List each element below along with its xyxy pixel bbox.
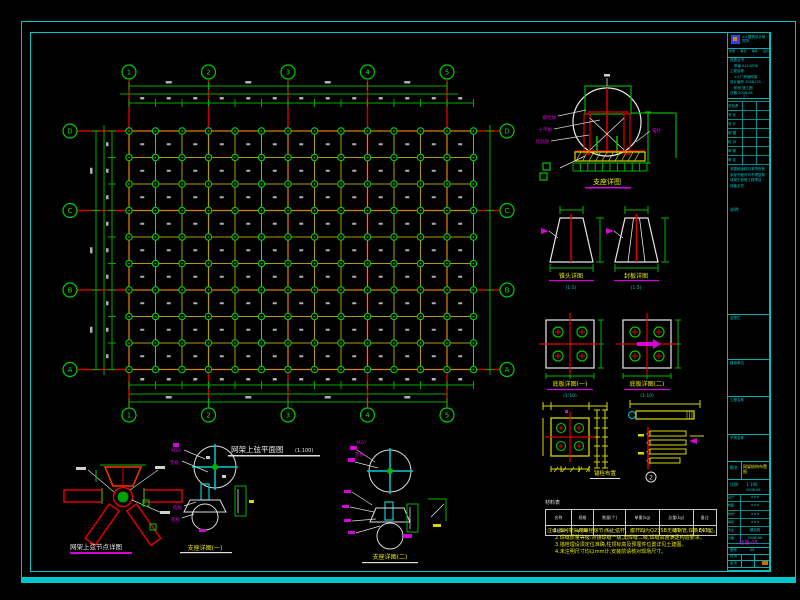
small-row-label: 审核: [728, 519, 741, 526]
dim-text-mark: [405, 378, 409, 381]
dim-text-mark: [167, 276, 171, 278]
axis-bubble-bottom-label: 2: [206, 412, 210, 420]
sheet-index-label: 第 张: [730, 561, 737, 565]
dim-text-mark: [379, 196, 383, 198]
sign-label: 设 计: [728, 120, 743, 128]
dim-text-mark: [458, 329, 462, 331]
dim-text-mark: [299, 97, 303, 100]
dim-text-mark: [167, 378, 171, 381]
dim-text-mark: [167, 355, 171, 357]
node-center: [367, 183, 369, 185]
node-center: [340, 236, 342, 238]
node-center: [340, 263, 342, 265]
sign-cell: [743, 156, 757, 164]
small-row-value: ×××: [741, 511, 769, 518]
dim-text-mark: [193, 223, 197, 225]
grout-hatch: [575, 152, 645, 161]
detail-title: 锚栓布置: [594, 469, 617, 477]
dim-text-mark: [379, 276, 383, 278]
note-label: 说明:: [730, 207, 739, 213]
node-center: [155, 130, 157, 132]
axis-bubble-top-label: 3: [286, 69, 290, 77]
dim-text-mark: [140, 249, 144, 251]
dim-text-mark: [220, 223, 224, 225]
dim-text-mark: [193, 97, 197, 100]
dim-text-mark: [379, 329, 383, 331]
node-center: [128, 263, 130, 265]
dim-text-mark: [379, 302, 383, 304]
chord-tube-right: [144, 490, 182, 502]
sign-row: 校 对: [728, 138, 769, 147]
small-row-label: 设计: [728, 494, 741, 501]
node-center: [261, 289, 263, 291]
dim-text-mark: [246, 302, 250, 304]
dim-text-mark: [140, 170, 144, 172]
dim-text-mark: [299, 170, 303, 172]
node-center: [234, 342, 236, 344]
date-value: 2008.06: [746, 488, 760, 492]
dim-text-mark: [432, 302, 436, 304]
dim-text-mark: [246, 276, 250, 278]
dim-text-mark: [352, 196, 356, 198]
node-center: [367, 263, 369, 265]
node-center: [420, 263, 422, 265]
leader-label: 底板: [171, 516, 180, 523]
axis-bubble-right-label: B: [505, 287, 510, 295]
dim-text-mark: [245, 396, 251, 399]
decor-layer: [546, 152, 692, 472]
node-center: [155, 183, 157, 185]
node-center: [393, 157, 395, 159]
node-center: [393, 369, 395, 371]
node-center: [128, 342, 130, 344]
axis-bubble-left-label: D: [67, 128, 72, 136]
dim-text-mark: [90, 247, 93, 253]
detail-scale: (1:10): [640, 393, 654, 399]
node-center: [181, 316, 183, 318]
circled-number: 2: [649, 475, 653, 482]
company-logo: [731, 35, 740, 44]
sign-label: 制 图: [728, 129, 743, 137]
node-center: [446, 130, 448, 132]
dim-text-mark: [220, 276, 224, 278]
small-row: 设计×××: [728, 494, 769, 502]
small-row: 制图×××: [728, 502, 769, 510]
dim-text-mark: [220, 170, 224, 172]
dim-text-mark: [273, 143, 277, 145]
dim-text-mark: [405, 223, 409, 225]
node-center: [287, 316, 289, 318]
dim-text-mark: [432, 143, 436, 145]
leader-label: M20: [171, 448, 181, 454]
dim-text-mark: [352, 276, 356, 278]
dim-text-mark: [326, 302, 330, 304]
section-divider: [728, 396, 769, 397]
dim-text-mark: [432, 329, 436, 331]
dim-text-mark: [220, 378, 224, 381]
dim-text-mark: [246, 97, 250, 100]
node-center: [128, 210, 130, 212]
drawing-number: 结施-08: [728, 539, 769, 546]
dim-text-mark: [404, 396, 410, 399]
dim-text-mark: [193, 170, 197, 172]
node-center: [234, 316, 236, 318]
dim-text-mark: [140, 302, 144, 304]
sign-cell: [743, 138, 757, 146]
node-center: [287, 157, 289, 159]
stamp-mark: [762, 561, 768, 565]
drawing-no-label: 图号: [730, 548, 737, 553]
node-center: [181, 342, 183, 344]
leader-label: 螺栓球: [543, 114, 557, 121]
general-notes: 注:1.本网架采用螺栓球节点,上弦杆、腹杆均为Q235B无缝钢管,焊条E43型。…: [547, 528, 725, 556]
dim-text-mark: [352, 223, 356, 225]
sign-cell: [743, 129, 757, 137]
node-center: [287, 183, 289, 185]
node-center: [446, 236, 448, 238]
detail-title: 支座详图: [593, 177, 621, 186]
leader-label: 垫板: [170, 459, 179, 466]
sign-label: 专 业: [728, 111, 743, 119]
dim-text-mark: [352, 249, 356, 251]
sign-cell: [743, 102, 757, 110]
node-center: [446, 210, 448, 212]
hatch-line: [635, 152, 640, 161]
node-center: [340, 210, 342, 212]
node-center: [181, 157, 183, 159]
small-row-value: ×××: [741, 502, 769, 509]
node-center: [155, 157, 157, 159]
dim-text-mark: [299, 223, 303, 225]
node-center: [367, 342, 369, 344]
dim-text-mark: [106, 169, 109, 173]
dim-text-mark: [405, 329, 409, 331]
title-block: ××建筑设计研究院 批准审定审核设计 资质证书甲级 A113008工程名称××厂…: [727, 32, 770, 571]
node-center: [420, 369, 422, 371]
node-center: [128, 369, 130, 371]
dim-text-mark: [326, 329, 330, 331]
weld-symbol-2: [540, 173, 547, 180]
dim-text-mark: [246, 170, 250, 172]
node-center: [367, 316, 369, 318]
node-center: [234, 369, 236, 371]
dim-text-mark: [140, 378, 144, 381]
note-line-4: 4.未注明尺寸均以mm计,安装前请核对现场尺寸。: [547, 549, 725, 556]
node-center: [181, 183, 183, 185]
dim-text-mark: [352, 170, 356, 172]
node-center: [420, 342, 422, 344]
dim-text-mark: [220, 329, 224, 331]
dim-text-mark: [90, 168, 93, 174]
node-center: [261, 236, 263, 238]
dim-text-mark: [326, 276, 330, 278]
support-detail-2: M20 垫板 支座详图(二): [342, 440, 446, 563]
node-center: [314, 183, 316, 185]
scale-label: 比例: [730, 482, 738, 488]
node-center: [314, 236, 316, 238]
dim-text-mark: [106, 142, 109, 146]
dim-text-mark: [458, 276, 462, 278]
copyright-block: 本图纸版权归本院所有未经书面许可不得复制或用于其他工程项目违者必究: [730, 167, 765, 189]
node-center: [181, 263, 183, 265]
node-center: [287, 369, 289, 371]
dim-text-mark: [432, 355, 436, 357]
node-center: [261, 342, 263, 344]
dim-text-mark: [326, 223, 330, 225]
node-center: [446, 342, 448, 344]
dim-text-mark: [405, 97, 409, 100]
leader-label: 加劲肋: [536, 138, 550, 145]
table-header-cell: 总重(kg): [659, 510, 693, 526]
table-header-cell: 数量(个): [594, 510, 626, 526]
node-center: [393, 183, 395, 185]
sheet-no: 08: [750, 548, 754, 552]
dim-text-mark: [245, 81, 251, 84]
dim-text-mark: [326, 355, 330, 357]
dim-text-mark: [379, 355, 383, 357]
dim-text-mark: [405, 276, 409, 278]
dim-text-mark: [193, 355, 197, 357]
node-center: [287, 236, 289, 238]
plan-scale-text: (1:100): [295, 448, 313, 454]
dim-text-mark: [379, 97, 383, 100]
axis-bubble-top-label: 1: [127, 69, 131, 77]
scale-value: 1:100: [746, 482, 758, 487]
node-center: [340, 369, 342, 371]
dim-text-mark: [379, 223, 383, 225]
dim-text-mark: [326, 143, 330, 145]
dim-text-mark: [273, 329, 277, 331]
dim-text-mark: [379, 143, 383, 145]
plan-title-underline: [228, 455, 320, 457]
dim-text-mark: [273, 378, 277, 381]
dim-text-mark: [140, 355, 144, 357]
dim-text-mark: [379, 378, 383, 381]
dim-text-mark: [405, 170, 409, 172]
table-header-row: 名称规格数量(个)单重(kg)总重(kg)备注: [546, 510, 717, 526]
node-center: [128, 183, 130, 185]
sign-cell: [743, 120, 757, 128]
drawing-name-label: 图名: [730, 465, 738, 471]
node-center: [155, 289, 157, 291]
company-name: ××建筑设计研究院: [742, 35, 768, 43]
node-center: [393, 263, 395, 265]
dim-text-mark: [90, 327, 93, 333]
node-center: [420, 316, 422, 318]
node-center: [473, 210, 475, 212]
dim-text-mark: [166, 81, 172, 84]
dim-text-mark: [432, 378, 436, 381]
node-center: [287, 289, 289, 291]
cone-details: 锥头详图 (1:5) 封板详图 (1:5): [541, 206, 669, 291]
weld-symbol-1: [543, 163, 550, 170]
anchor-elev-detail: 2: [629, 400, 705, 482]
leader-label: 十字板: [539, 126, 553, 133]
sign-row: 设 计: [728, 120, 769, 129]
node-center: [208, 369, 210, 371]
info-line: 设计编号 2008-J15: [730, 80, 761, 86]
node-center: [367, 289, 369, 291]
sign-row: 审 定: [728, 156, 769, 165]
dim-text-mark: [193, 378, 197, 381]
node-center: [340, 289, 342, 291]
dim-text-mark: [458, 97, 462, 100]
axis-bubble-top-label: 5: [445, 69, 449, 77]
node-center: [261, 369, 263, 371]
dim-text-mark: [220, 302, 224, 304]
dim-text-mark: [299, 378, 303, 381]
node-center: [234, 289, 236, 291]
node-center: [128, 236, 130, 238]
node-center: [340, 130, 342, 132]
node-center: [208, 263, 210, 265]
node-center: [393, 130, 395, 132]
node-center: [208, 210, 210, 212]
sign-cell: [743, 147, 757, 155]
dim-text-mark: [326, 170, 330, 172]
cert-cell: 审定: [740, 49, 746, 56]
table-header-cell: 规格: [571, 510, 593, 526]
node-center: [261, 263, 263, 265]
dim-text-mark: [299, 196, 303, 198]
dim-text-mark: [273, 223, 277, 225]
dim-text-mark: [220, 143, 224, 145]
node-center: [367, 130, 369, 132]
note-line-2: 2.焊缝质量等级:对接焊缝一级,角焊缝二级,焊缝高度满足构造要求。: [547, 535, 725, 542]
dim-text-mark: [167, 249, 171, 251]
node-center: [234, 210, 236, 212]
weld-arrow: [606, 228, 614, 234]
section-arrow: [637, 342, 653, 346]
node-center: [340, 157, 342, 159]
dim-text-mark: [432, 170, 436, 172]
node-center: [473, 289, 475, 291]
cad-sheet: 1122334455DDCCBBAA 网架上弦平面图 (1:100): [0, 0, 800, 600]
dim-text-mark: [167, 196, 171, 198]
dim-text-mark: [193, 196, 197, 198]
cert-cell: 审核: [752, 49, 758, 56]
node-center: [420, 289, 422, 291]
node-center: [473, 316, 475, 318]
dim-text-mark: [246, 378, 250, 381]
dim-text-mark: [140, 223, 144, 225]
node-center: [314, 342, 316, 344]
dim-text-mark: [352, 329, 356, 331]
detail-title: 底板详图(一): [553, 380, 588, 388]
dim-text-mark: [326, 97, 330, 100]
dim-text-mark: [405, 249, 409, 251]
node-center: [287, 130, 289, 132]
sign-row: 审 核: [728, 147, 769, 156]
dim-text-mark: [246, 329, 250, 331]
dim-text-mark: [299, 249, 303, 251]
dim-text-mark: [299, 302, 303, 304]
dim-text-mark: [432, 97, 436, 100]
leader-label: 锚栓: [652, 127, 661, 134]
node-center: [314, 369, 316, 371]
axis-bubble-left-label: B: [68, 287, 73, 295]
node-center: [314, 130, 316, 132]
axis-bubble-right-label: D: [504, 128, 509, 136]
dim-text-mark: [246, 196, 250, 198]
node-center: [155, 263, 157, 265]
dim-text-mark: [325, 81, 331, 84]
node-center: [208, 130, 210, 132]
dim-text-mark: [246, 143, 250, 145]
dim-text-mark: [166, 396, 172, 399]
dim-text-mark: [273, 196, 277, 198]
dim-text-mark: [299, 143, 303, 145]
plan-title: 网架上弦平面图 (1:100): [228, 444, 320, 457]
small-row-label: 专业: [728, 527, 741, 534]
axis-bubble-right-label: C: [505, 207, 510, 215]
node-center: [420, 157, 422, 159]
detail-title: 支座详图(一): [188, 544, 223, 552]
section-divider: [728, 359, 769, 360]
small-row-label: 制图: [728, 502, 741, 509]
dim-text-mark: [379, 170, 383, 172]
sign-label: 总负责: [728, 102, 743, 110]
node-center: [181, 210, 183, 212]
table-header-cell: 名称: [546, 510, 572, 526]
node-center: [473, 130, 475, 132]
node-center: [473, 369, 475, 371]
node-center: [155, 316, 157, 318]
axis-bubble-top-label: 4: [365, 69, 370, 77]
axis-bubble-bottom-label: 3: [286, 412, 290, 420]
note-line-1: 注:1.本网架采用螺栓球节点,上弦杆、腹杆均为Q235B无缝钢管,焊条E43型。: [547, 528, 725, 535]
dim-text-mark: [193, 276, 197, 278]
table-header-cell: 备注: [693, 510, 716, 526]
node-center: [446, 369, 448, 371]
dim-text-mark: [246, 223, 250, 225]
node-center: [208, 289, 210, 291]
drawing-name-value: 网架结构布置图: [743, 464, 769, 474]
small-row-value: 钢结构: [741, 527, 769, 534]
dim-text-mark: [106, 222, 109, 226]
dim-text-mark: [405, 143, 409, 145]
node-center: [446, 263, 448, 265]
dim-text-mark: [193, 249, 197, 251]
sign-label: 校 对: [728, 138, 743, 146]
node-center: [340, 342, 342, 344]
section-label: 会签栏: [730, 316, 741, 321]
node-center: [208, 236, 210, 238]
node-center: [420, 183, 422, 185]
node-center: [234, 263, 236, 265]
note-line-3: 3.锚栓埋设须定位准确,柱顶标高及预埋件位置详见土建图。: [547, 542, 725, 549]
detail-title: 锥头详图: [559, 272, 583, 280]
sign-label: 审 核: [728, 147, 743, 155]
node-center: [128, 316, 130, 318]
detail-scale: (1:5): [566, 285, 577, 291]
node-center: [367, 157, 369, 159]
node-center: [208, 342, 210, 344]
leader-label: 垫板: [355, 451, 364, 458]
node-center: [128, 157, 130, 159]
dim-text-mark: [140, 97, 144, 100]
axis-bubble-bottom-label: 4: [365, 412, 370, 420]
cert-cell: 设计: [763, 49, 769, 56]
node-center: [393, 289, 395, 291]
sign-row: 专 业: [728, 111, 769, 120]
node-center: [261, 210, 263, 212]
dim-text-mark: [299, 355, 303, 357]
dim-text-mark: [432, 249, 436, 251]
node-center: [287, 210, 289, 212]
dim-text-mark: [326, 249, 330, 251]
dim-text-mark: [106, 354, 109, 358]
